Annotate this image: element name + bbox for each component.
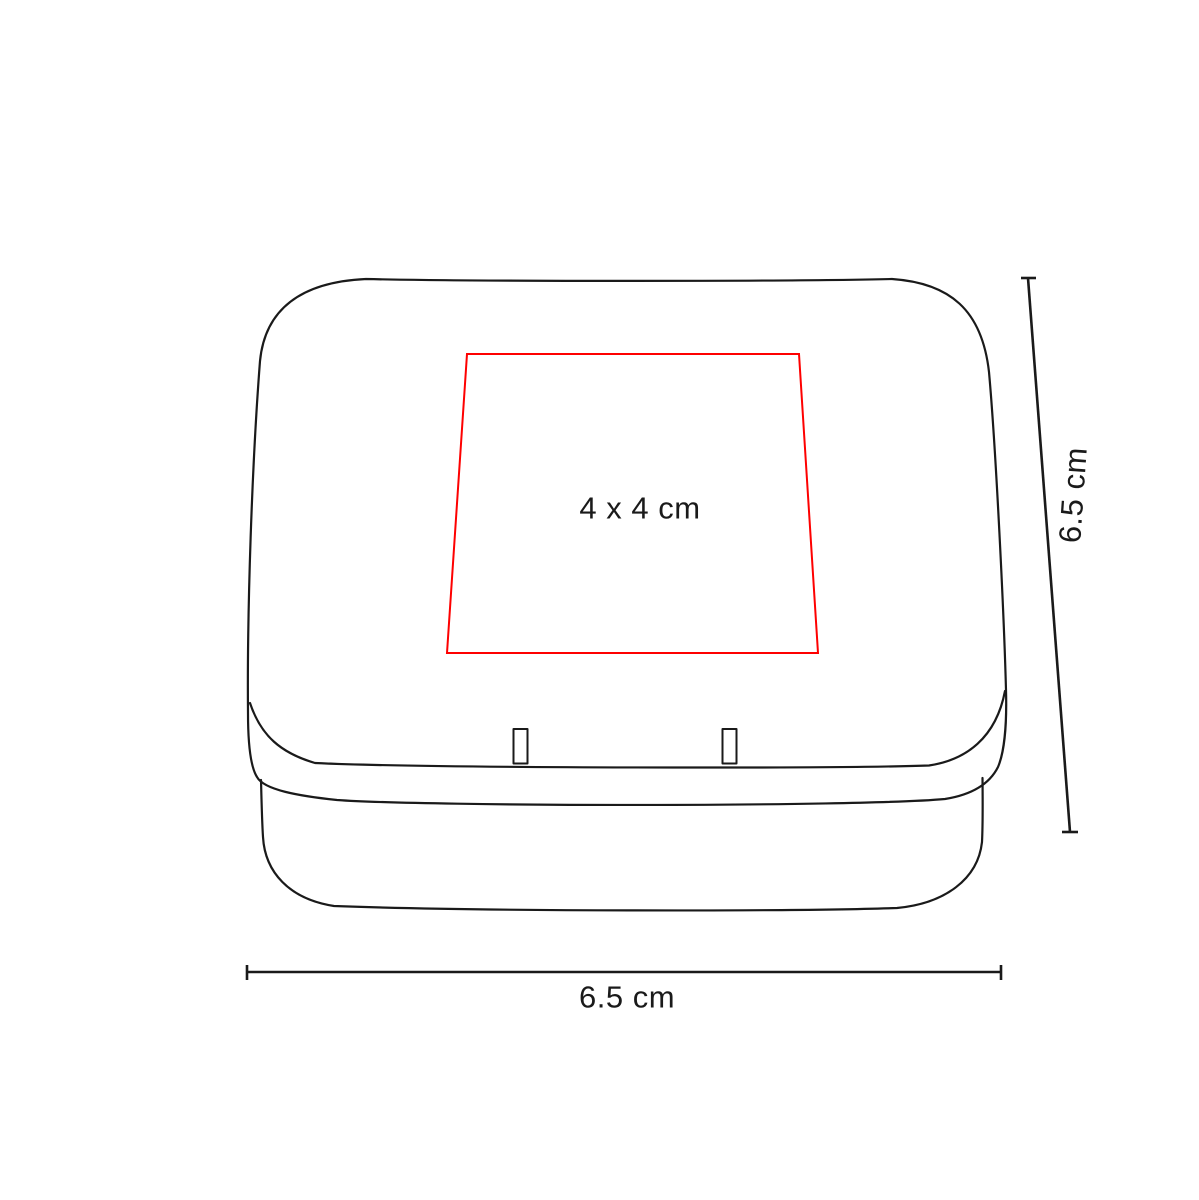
hinge-tab-left <box>514 729 528 764</box>
height-dimension-label: 6.5 cm <box>1052 446 1094 544</box>
width-dimension <box>247 965 1001 980</box>
tin-base-outline <box>261 778 983 910</box>
print-area-label: 4 x 4 cm <box>579 491 700 526</box>
hinge-tab-right <box>723 729 737 764</box>
height-dimension-line <box>1028 278 1070 832</box>
product-dimension-diagram: 6.5 cm 6.5 cm 4 x 4 cm <box>0 0 1199 1200</box>
tin-drawing <box>248 279 1006 910</box>
tin-lid-outline <box>248 279 1006 805</box>
tin-lid-front-edge <box>250 691 1005 768</box>
width-dimension-label: 6.5 cm <box>579 980 675 1015</box>
diagram-canvas: 6.5 cm 6.5 cm 4 x 4 cm <box>0 0 1199 1200</box>
height-dimension <box>1021 278 1078 832</box>
